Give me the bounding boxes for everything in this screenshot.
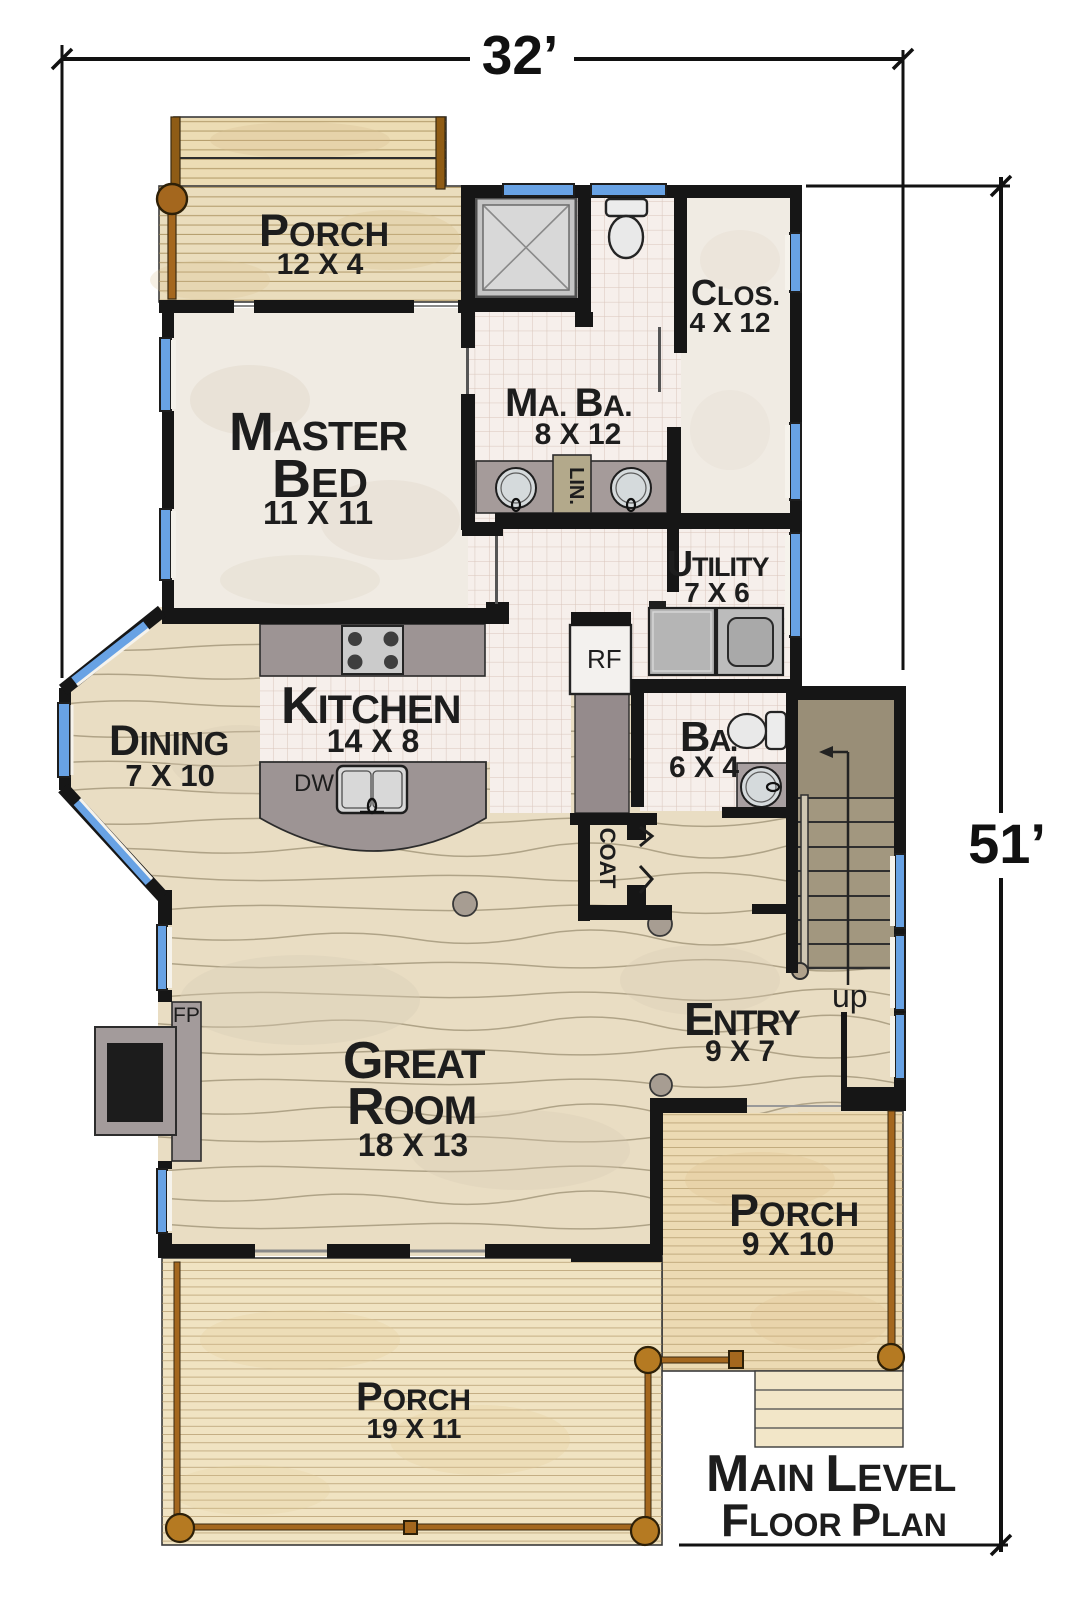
svg-text:up: up (832, 978, 868, 1014)
svg-text:COAT: COAT (595, 828, 620, 889)
svg-text:LIN.: LIN. (565, 467, 587, 505)
svg-text:7 X 10: 7 X 10 (125, 758, 215, 793)
svg-text:9 X 10: 9 X 10 (742, 1226, 835, 1262)
svg-text:6 X 4: 6 X 4 (669, 751, 739, 784)
svg-text:DW: DW (294, 770, 334, 797)
svg-text:14 X 8: 14 X 8 (327, 723, 420, 759)
svg-text:51’: 51’ (968, 812, 1046, 875)
svg-text:FP: FP (173, 1004, 200, 1027)
svg-text:12 X 4: 12 X 4 (277, 248, 364, 281)
svg-text:18 X 13: 18 X 13 (358, 1127, 468, 1163)
svg-text:4 X 12: 4 X 12 (690, 307, 771, 338)
svg-text:RF: RF (587, 644, 622, 674)
svg-text:32’: 32’ (482, 24, 558, 86)
svg-text:19 X 11: 19 X 11 (367, 1413, 462, 1444)
svg-text:8 X 12: 8 X 12 (535, 418, 622, 451)
svg-text:11 X 11: 11 X 11 (263, 494, 373, 531)
svg-text:9 X 7: 9 X 7 (705, 1035, 775, 1068)
svg-text:7 X 6: 7 X 6 (684, 577, 749, 608)
